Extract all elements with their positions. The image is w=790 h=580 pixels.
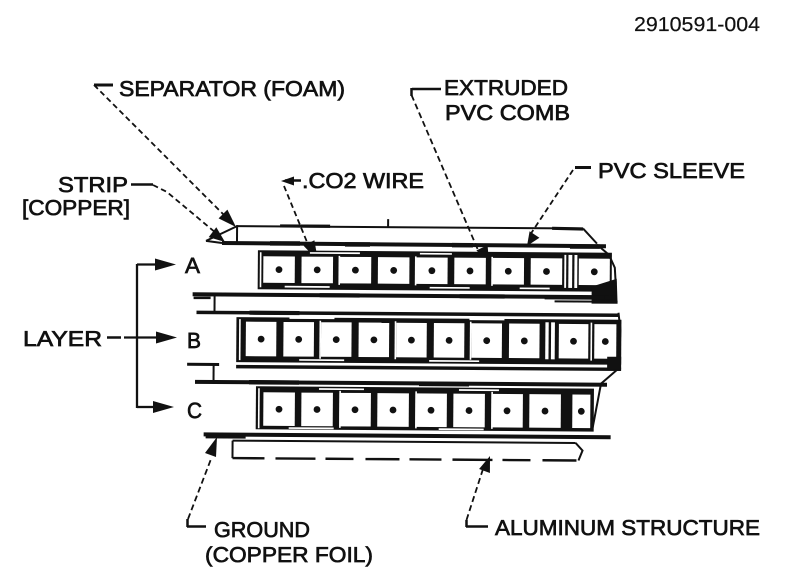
svg-text:[COPPER]: [COPPER] — [22, 196, 130, 220]
svg-text:B: B — [187, 328, 201, 353]
svg-text:ALUMINUM STRUCTURE: ALUMINUM STRUCTURE — [495, 516, 760, 540]
svg-text:PVC COMB: PVC COMB — [445, 101, 570, 125]
svg-text:(COPPER FOIL): (COPPER FOIL) — [205, 543, 373, 567]
svg-text:STRIP: STRIP — [58, 173, 128, 197]
svg-text:EXTRUDED: EXTRUDED — [444, 76, 568, 100]
svg-text:PVC SLEEVE: PVC SLEEVE — [598, 159, 745, 183]
svg-text:.CO2 WIRE: .CO2 WIRE — [302, 169, 424, 193]
svg-text:C: C — [187, 398, 202, 423]
svg-text:2910591-004: 2910591-004 — [634, 14, 760, 36]
svg-text:SEPARATOR (FOAM): SEPARATOR (FOAM) — [119, 77, 345, 101]
svg-text:GROUND: GROUND — [214, 518, 310, 542]
svg-text:LAYER: LAYER — [23, 327, 102, 351]
svg-text:A: A — [185, 253, 200, 278]
